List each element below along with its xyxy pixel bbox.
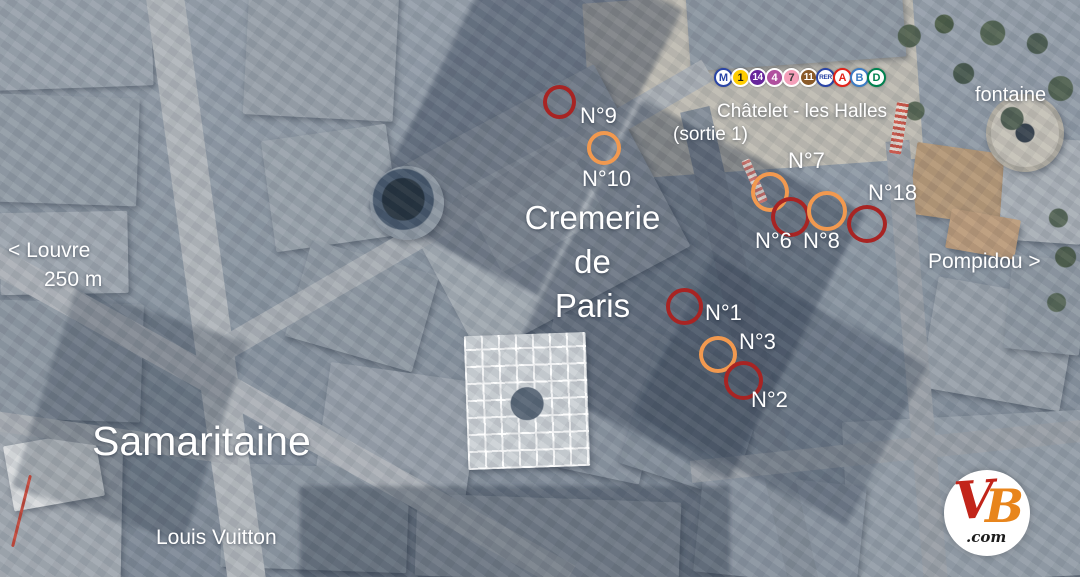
marker-circle-n10[interactable] xyxy=(587,131,621,165)
cremerie-line3: Paris xyxy=(490,284,695,328)
louis-vuitton-label: Louis Vuitton xyxy=(156,526,277,550)
samaritaine-label: Samaritaine xyxy=(92,418,311,465)
marker-circle-n8[interactable] xyxy=(807,191,847,231)
louvre-direction-text: < Louvre xyxy=(8,236,102,265)
marker-circle-n18[interactable] xyxy=(847,205,887,243)
louvre-distance-text: 250 m xyxy=(44,265,102,294)
marker-label-n8[interactable]: N°8 xyxy=(803,228,840,254)
map-screenshot: M 1 14 4 7 11 RER A B D Châtelet - les H… xyxy=(0,0,1080,577)
marker-label-n6[interactable]: N°6 xyxy=(755,228,792,254)
rer-d-icon: D xyxy=(867,68,886,87)
marker-label-n18[interactable]: N°18 xyxy=(868,180,917,206)
fontaine-label: fontaine xyxy=(975,84,1046,107)
logo-suffix: .com xyxy=(966,528,1006,546)
vb-com-logo[interactable]: V B .com xyxy=(944,470,1030,556)
logo-letter-b: B xyxy=(985,479,1024,533)
marker-label-n7[interactable]: N°7 xyxy=(788,148,825,174)
marker-label-n10[interactable]: N°10 xyxy=(582,166,631,192)
pompidou-direction-label[interactable]: Pompidou > xyxy=(928,250,1041,274)
cremerie-de-paris-label: Cremerie de Paris xyxy=(490,196,695,328)
station-name-label: Châtelet - les Halles xyxy=(717,101,887,123)
marker-circle-n9[interactable] xyxy=(543,85,576,119)
louvre-direction-label[interactable]: < Louvre 250 m xyxy=(8,236,102,294)
marker-label-n2[interactable]: N°2 xyxy=(751,387,788,413)
marker-label-n9[interactable]: N°9 xyxy=(580,103,617,129)
station-exit-label: (sortie 1) xyxy=(673,124,748,146)
marker-label-n3[interactable]: N°3 xyxy=(739,329,776,355)
cremerie-line2: de xyxy=(490,240,695,284)
cremerie-line1: Cremerie xyxy=(490,196,695,240)
metro-lines-row: M 1 14 4 7 11 RER A B D xyxy=(714,68,886,87)
marker-label-n1[interactable]: N°1 xyxy=(705,300,742,326)
